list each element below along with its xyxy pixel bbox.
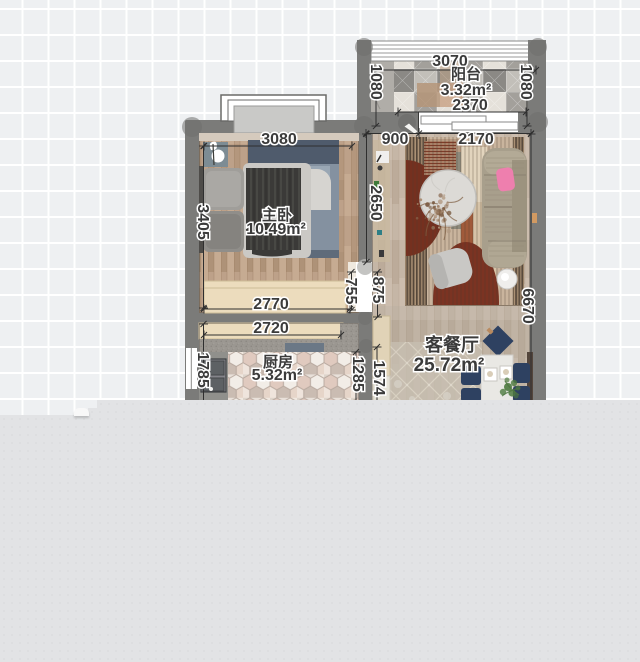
svg-text:3405: 3405	[194, 204, 211, 240]
svg-text:2170: 2170	[458, 131, 494, 148]
svg-text:1785: 1785	[194, 352, 211, 388]
svg-text:6670: 6670	[519, 288, 536, 324]
svg-text:2650: 2650	[367, 185, 384, 221]
svg-text:客餐厅: 客餐厅	[425, 334, 479, 355]
svg-text:3080: 3080	[261, 131, 297, 148]
svg-text:1080: 1080	[367, 64, 384, 100]
svg-text:2770: 2770	[253, 296, 289, 313]
svg-text:阳台: 阳台	[451, 65, 481, 83]
svg-text:1285: 1285	[349, 356, 366, 392]
svg-text:2370: 2370	[452, 97, 488, 114]
svg-text:10.49m²: 10.49m²	[246, 221, 306, 238]
svg-text:5.32m²: 5.32m²	[252, 367, 303, 384]
svg-text:25.72m²: 25.72m²	[414, 355, 485, 376]
svg-text:1574: 1574	[370, 360, 387, 396]
svg-text:900: 900	[382, 131, 409, 148]
svg-text:1080: 1080	[517, 64, 534, 100]
svg-text:2720: 2720	[253, 320, 289, 337]
svg-text:755: 755	[342, 278, 359, 305]
svg-text:875: 875	[369, 277, 386, 304]
